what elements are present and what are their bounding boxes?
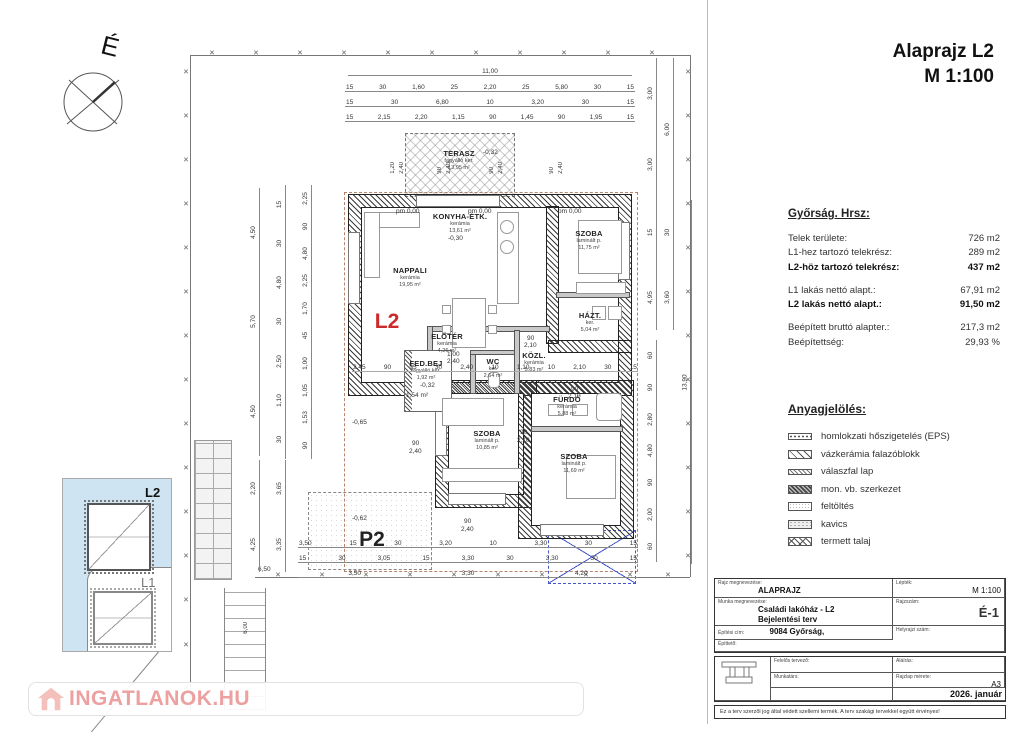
- partition-swatch-icon: [788, 469, 812, 475]
- dim-annotation: 90: [412, 441, 419, 448]
- dim-value: 15: [276, 201, 283, 208]
- dim-value: 10: [547, 364, 556, 371]
- dim-value: 2,15: [377, 114, 392, 121]
- dim-value: 10: [485, 99, 494, 106]
- dim-value: 5,70: [250, 316, 257, 329]
- dim-value: 90: [302, 222, 309, 229]
- dim-value: 3,05: [377, 555, 392, 562]
- dim-top-row3: 152,152,201,15901,45901,9515: [345, 112, 635, 122]
- dim-right-a: 3,003,00: [645, 58, 657, 200]
- firm-logo-icon: [718, 658, 762, 694]
- dim-value: 15: [626, 84, 635, 91]
- boundary-mark-icon: ×: [517, 49, 522, 58]
- property-info-panel: Győrság. Hrsz: Telek területe:726 m2 L1-…: [788, 208, 1000, 350]
- dim-value: 90: [647, 479, 654, 486]
- wall-bath-bedroom3: [531, 426, 623, 432]
- north-label: É: [98, 30, 122, 63]
- dim-value: 30: [393, 540, 402, 547]
- dim-value: 4,50: [250, 405, 257, 418]
- watermark-text: INGATLANOK.HU: [69, 687, 250, 711]
- boundary-mark-icon: ×: [297, 49, 302, 58]
- dim-left-lower-b: 3,653,35: [274, 460, 286, 572]
- dim-value: 1,45: [520, 114, 535, 121]
- empty-cell: [771, 688, 893, 701]
- dim-value: 5,80: [554, 84, 569, 91]
- legend-row: feltöltés: [788, 498, 1000, 516]
- dim-annotation: 90: [437, 167, 443, 174]
- boundary-mark-icon: ×: [183, 376, 188, 385]
- drawing-number-label: Rajzszám:: [896, 599, 919, 605]
- dim-value: 3,30: [533, 540, 548, 547]
- boundary-mark-icon: ×: [649, 49, 654, 58]
- sheet-size-cell: Rajzlap mérete: A3: [893, 673, 1005, 688]
- dim-annotation: 90: [520, 430, 527, 437]
- dim-value: 30: [664, 229, 671, 236]
- concrete-swatch-icon: [788, 485, 812, 494]
- dim-value: 1,00: [302, 357, 309, 370]
- dim-right-e: 60902,804,80902,0060: [645, 340, 657, 562]
- brick-swatch-icon: [788, 450, 812, 459]
- dim-annotation: 90: [549, 167, 555, 174]
- collaborator-label: Munkatárs:: [774, 674, 799, 680]
- dim-top-row2: 15306,80103,203015: [345, 97, 635, 107]
- legend-label: kavics: [821, 519, 847, 530]
- dim-value: 3,65: [276, 482, 283, 495]
- dim-annotation: 2,40: [409, 449, 422, 456]
- boundary-mark-icon: ×: [183, 200, 188, 209]
- boundary-mark-icon: ×: [183, 508, 188, 517]
- dim-annotation: 90: [464, 519, 471, 526]
- dim-value: 3,50: [347, 570, 362, 577]
- date-cell: 2026. január: [893, 688, 1005, 701]
- room-label: NAPPALIkerámia19,95 m²: [393, 266, 427, 288]
- designer-cell: Felelős tervező:: [771, 657, 893, 673]
- boundary-mark-icon: ×: [253, 49, 258, 58]
- firm-logo-cell: [715, 657, 771, 701]
- dim-value: 30: [589, 555, 598, 562]
- drawing-number-cell: Rajzszám: É-1: [893, 598, 1005, 626]
- parcel-label: Helyrajzi szám:: [896, 627, 930, 633]
- fill-swatch-icon: [788, 502, 812, 511]
- dim-value: 15: [298, 555, 307, 562]
- legend-row: vázkerámia falazóblokk: [788, 446, 1000, 464]
- dim-value: 15: [626, 114, 635, 121]
- dim-value: 3,35: [276, 538, 283, 551]
- boundary-mark-icon: ×: [183, 156, 188, 165]
- legend-label: válaszfal lap: [821, 466, 873, 477]
- boundary-mark-icon: ×: [341, 49, 346, 58]
- info-row: Beépített bruttó alapter.:217,3 m2: [788, 321, 1000, 335]
- dim-value: 2,25: [302, 192, 309, 205]
- scale-value: M 1:100: [896, 586, 1001, 595]
- dim-value: 25: [450, 84, 459, 91]
- drawing-title-line1: Alaprajz L2: [893, 40, 994, 65]
- dim-value: 30: [276, 240, 283, 247]
- kitchen-sink: [500, 220, 514, 234]
- scale-label: Lépték:: [896, 580, 912, 586]
- dim-value: 15: [629, 364, 638, 371]
- dim-value: 95: [408, 364, 417, 371]
- dim-value: 15: [345, 84, 354, 91]
- drawing-title: Alaprajz L2 M 1:100: [893, 40, 994, 89]
- info-label: L1-hez tartozó telekrész:: [788, 246, 892, 260]
- dim-right-b: 6,00: [662, 58, 674, 200]
- dim-interior-row: 2,459095302,40101,10102,103015: [352, 362, 638, 372]
- dim-value: 2,80: [647, 413, 654, 426]
- chair: [442, 305, 451, 314]
- boundary-mark-icon: ×: [183, 641, 188, 650]
- dim-value: 13,90: [682, 374, 689, 390]
- address-cell: Építési cím: 9084 Győrság,: [715, 626, 893, 640]
- dim-value: 4,80: [647, 445, 654, 458]
- dim-value: 15: [629, 555, 638, 562]
- drawing-name-cell: Rajz megnevezése: ALAPRAJZ: [715, 579, 893, 598]
- dim-value: 1,53: [302, 411, 309, 424]
- lot-boundary-left: [190, 55, 191, 710]
- dim-annotation: pm 0,00: [396, 209, 420, 216]
- dim-value: 3,30: [461, 570, 476, 577]
- copyright-note: Ez a terv szerzői jog által védett szell…: [714, 705, 1006, 719]
- house-logo-icon: [37, 686, 65, 712]
- info-label: L2-höz tartozó telekrész:: [788, 261, 899, 275]
- watermark-bar: INGATLANOK.HU: [28, 682, 584, 716]
- client-cell: Építtető:: [715, 640, 893, 652]
- terrace-door-opening: [416, 195, 500, 207]
- wardrobe-bedroom1: [576, 282, 626, 294]
- sofa-chaise: [364, 212, 380, 278]
- info-value: 91,50 m2: [960, 298, 1000, 312]
- boundary-mark-icon: ×: [685, 156, 690, 165]
- dim-value: 30: [337, 555, 346, 562]
- dim-value: 2,45: [352, 364, 367, 371]
- dim-annotation: 2,10: [524, 343, 537, 350]
- boundary-mark-icon: ×: [561, 49, 566, 58]
- north-compass: É: [55, 28, 165, 138]
- dim-value: 4,80: [302, 247, 309, 260]
- info-row: L1 lakás nettó alapt.:67,91 m2: [788, 284, 1000, 298]
- dim-value: 30: [276, 436, 283, 443]
- boundary-mark-icon: ×: [183, 464, 188, 473]
- dim-value: 30: [505, 555, 514, 562]
- dim-annotation: 2,40: [498, 162, 504, 174]
- boundary-mark-icon: ×: [183, 596, 188, 605]
- eps-swatch-icon: [788, 433, 812, 440]
- dim-value: 3,60: [664, 291, 671, 304]
- boundary-mark-icon: ×: [429, 49, 434, 58]
- info-value: 29,93 %: [965, 336, 1000, 350]
- dim-value: 30: [434, 364, 443, 371]
- boundary-mark-icon: ×: [473, 49, 478, 58]
- dim-right-d: 303,60: [662, 200, 674, 330]
- dim-right-c: 154,95: [645, 200, 657, 330]
- dim-value: 30: [584, 540, 593, 547]
- kitchen-hob: [500, 240, 514, 254]
- dim-annotation: 6,00: [243, 622, 249, 634]
- dim-value: 2,20: [414, 114, 429, 121]
- client-label: Építtető:: [718, 641, 737, 647]
- sheet-divider: [707, 0, 708, 724]
- collaborator-cell: Munkatárs:: [771, 673, 893, 688]
- dim-left-b: 15304,80302,501,1030: [274, 185, 286, 459]
- info-row: L1-hez tartozó telekrész:289 m2: [788, 246, 1000, 260]
- boundary-mark-icon: ×: [685, 112, 690, 121]
- work-name-cell: Munka megnevezése: Családi lakóház - L2 …: [715, 598, 893, 626]
- boundary-mark-icon: ×: [385, 49, 390, 58]
- dim-value: 4,20: [574, 570, 589, 577]
- wall-utility-bath: [548, 340, 632, 353]
- legend-label: feltöltés: [821, 501, 854, 512]
- dim-value: 15: [647, 229, 654, 236]
- work-name-value1: Családi lakóház - L2: [758, 605, 889, 615]
- dim-value: 3,30: [545, 555, 560, 562]
- info-label: L2 lakás nettó alapt.:: [788, 298, 882, 312]
- work-name-value2: Bejelentési terv: [758, 615, 889, 625]
- legend-row: válaszfal lap: [788, 463, 1000, 481]
- dim-value: 2,20: [483, 84, 498, 91]
- dim-value: 25: [521, 84, 530, 91]
- dim-value: 30: [390, 99, 399, 106]
- chair: [488, 325, 497, 334]
- dim-value: 15: [345, 99, 354, 106]
- legend-heading: Anyagjelölés:: [788, 402, 1000, 416]
- info-row: L2-höz tartozó telekrész:437 m2: [788, 261, 1000, 275]
- dim-value: 3,20: [438, 540, 453, 547]
- dim-value: 60: [647, 352, 654, 359]
- dim-annotation: 1,20: [390, 162, 396, 174]
- legend-row: mon. vb. szerkezet: [788, 481, 1000, 499]
- dim-value: 1,70: [302, 302, 309, 315]
- boundary-mark-icon: ×: [183, 112, 188, 121]
- key-plan-l1-footprint: [93, 591, 153, 645]
- bed-bedroom2: [442, 398, 504, 426]
- dim-annotation: -0,32: [420, 383, 435, 390]
- unit-l2-label: L2: [375, 310, 400, 334]
- boundary-mark-icon: ×: [183, 332, 188, 341]
- dim-annotation: 2,40: [399, 162, 405, 174]
- drawing-name-label: Rajz megnevezése:: [718, 580, 762, 586]
- dim-value: 2,25: [302, 275, 309, 288]
- dim-value: 6,80: [435, 99, 450, 106]
- dim-value: 1,05: [302, 384, 309, 397]
- cabinet-bedroom2: [442, 468, 522, 482]
- dim-value: 30: [581, 99, 590, 106]
- dim-annotation: -0,62: [352, 516, 367, 523]
- info-label: L1 lakás nettó alapt.:: [788, 284, 876, 298]
- wall-kitchen-bedroom: [546, 206, 559, 344]
- boundary-mark-icon: ×: [183, 420, 188, 429]
- boundary-mark-icon: ×: [605, 49, 610, 58]
- dim-right-total: 13,90: [680, 200, 692, 564]
- living-window: [348, 232, 360, 304]
- dim-top-row1: 15301,60252,20255,803015: [345, 82, 635, 92]
- room-label: HÁZT.ker.5,04 m²: [579, 311, 601, 333]
- dim-bottom-row1: 3,5015303,20103,303015: [298, 538, 638, 548]
- materials-legend: Anyagjelölés: homlokzati hőszigetelés (E…: [788, 402, 1000, 551]
- drawing-title-line2: M 1:100: [893, 65, 994, 90]
- dim-annotation: -0,65: [352, 420, 367, 427]
- dim-left-c: 2,25904,802,251,70451,001,051,5390: [300, 185, 312, 459]
- dim-value: 1,15: [451, 114, 466, 121]
- info-value: 289 m2: [968, 246, 1000, 260]
- dim-annotation: 1,54 m²: [406, 393, 428, 400]
- dim-value: 15: [348, 540, 357, 547]
- legend-row: termett talaj: [788, 533, 1000, 551]
- shower: [596, 393, 622, 421]
- sheet-size-label: Rajzlap mérete:: [896, 674, 931, 680]
- wall-wc-west: [470, 350, 476, 394]
- dim-value: 15: [626, 99, 635, 106]
- dim-value: 60: [647, 542, 654, 549]
- dim-value: 90: [302, 442, 309, 449]
- dim-value: 15: [421, 555, 430, 562]
- gravel-swatch-icon: [788, 520, 812, 529]
- retaining-wall: [194, 440, 232, 580]
- scale-cell: Lépték: M 1:100: [893, 579, 1005, 598]
- dim-value: 3,20: [530, 99, 545, 106]
- dim-value: 1,60: [411, 84, 426, 91]
- dim-value: 2,40: [459, 364, 474, 371]
- boundary-mark-icon: ×: [685, 68, 690, 77]
- boundary-mark-icon: ×: [183, 244, 188, 253]
- key-plan-l2-label: L2: [145, 485, 160, 500]
- dim-left-a: 4,505,704,50: [248, 188, 260, 456]
- dryer: [608, 306, 622, 320]
- legend-label: termett talaj: [821, 536, 871, 547]
- key-plan-l1-label: L1: [141, 575, 155, 590]
- dim-top-total: 11,00: [348, 66, 632, 76]
- dim-value: 2,20: [250, 482, 257, 495]
- room-label: SZOBAlaminált p.11,69 m²: [560, 452, 587, 474]
- key-plan-inset: L2 L1: [62, 478, 172, 652]
- dim-annotation: -0,32: [483, 150, 498, 157]
- dim-value: 30: [378, 84, 387, 91]
- dim-value: 2,50: [276, 355, 283, 368]
- dim-value: 1,10: [516, 364, 531, 371]
- legend-label: mon. vb. szerkezet: [821, 484, 901, 495]
- date-value: 2026. január: [896, 689, 1002, 699]
- info-value: 726 m2: [968, 232, 1000, 246]
- dim-value: 30: [603, 364, 612, 371]
- legend-row: homlokzati hőszigetelés (EPS): [788, 428, 1000, 446]
- dim-value: 3,00: [647, 158, 654, 171]
- dim-value: 3,30: [461, 555, 476, 562]
- boundary-mark-icon: ×: [209, 49, 214, 58]
- dim-annotation: 2,10: [517, 438, 530, 445]
- dim-value: 90: [488, 114, 497, 121]
- drawing-number-value: É-1: [896, 605, 1001, 620]
- dim-value: 3,50: [298, 540, 313, 547]
- dim-value: 1,95: [589, 114, 604, 121]
- dim-value: 10: [490, 364, 499, 371]
- info-row: Beépítettség:29,93 %: [788, 336, 1000, 350]
- room-label: SZOBAlaminált p.11,75 m²: [575, 229, 602, 251]
- legend-label: vázkerámia falazóblokk: [821, 449, 920, 460]
- parcel-cell: Helyrajzi szám:: [893, 626, 1005, 652]
- property-info-heading: Győrság. Hrsz:: [788, 208, 1000, 220]
- dim-annotation: 2,40: [446, 162, 452, 174]
- dim-annotation: pm 0,00: [468, 209, 492, 216]
- info-value: 437 m2: [968, 261, 1000, 275]
- dim-value: 30: [276, 318, 283, 325]
- dim-value: 15: [345, 114, 354, 121]
- dim-bottom-row3: 3,503,304,20: [298, 568, 638, 578]
- bedroom2-window-south: [448, 493, 506, 505]
- dim-value: 90: [647, 384, 654, 391]
- bedroom3-window: [540, 524, 604, 536]
- dim-value: 90: [383, 364, 392, 371]
- dim-value: 11,00: [481, 68, 499, 75]
- dim-value: 10: [489, 540, 498, 547]
- dim-value: 3,00: [647, 87, 654, 100]
- boundary-mark-icon: ×: [665, 571, 670, 580]
- designer-label: Felelős tervező:: [774, 658, 809, 664]
- room-label: SZOBAlaminált p.10,85 m²: [473, 429, 500, 451]
- boundary-mark-icon: ×: [183, 552, 188, 561]
- dim-value: 15: [629, 540, 638, 547]
- dim-annotation: 90: [489, 167, 495, 174]
- dim-value: 30: [593, 84, 602, 91]
- dim-annotation: pm 0,00: [558, 209, 582, 216]
- signature-label: Aláírás:: [896, 658, 913, 664]
- dim-value: 4,25: [250, 538, 257, 551]
- signature-cell: Aláírás:: [893, 657, 1005, 673]
- dim-value: 4,80: [276, 277, 283, 290]
- dim-value: 2,10: [572, 364, 587, 371]
- dim-value: 4,50: [250, 226, 257, 239]
- dim-value: 1,10: [276, 394, 283, 407]
- address-value: 9084 Győrság,: [746, 627, 825, 636]
- info-value: 67,91 m2: [960, 284, 1000, 298]
- dim-annotation: 2,40: [558, 162, 564, 174]
- dim-annotation: -0,30: [448, 236, 463, 243]
- info-row: Telek területe:726 m2: [788, 232, 1000, 246]
- dim-value: 45: [302, 332, 309, 339]
- boundary-mark-icon: ×: [183, 288, 188, 297]
- wall-wc-north: [470, 350, 520, 355]
- chair: [488, 305, 497, 314]
- dim-left-lower-a: 2,204,25: [248, 460, 260, 572]
- dim-value: 90: [557, 114, 566, 121]
- info-label: Beépített bruttó alapter.:: [788, 321, 889, 335]
- dim-value: 6,00: [664, 123, 671, 136]
- address-label: Építési cím:: [718, 630, 744, 636]
- drawing-name-value: ALAPRAJZ: [718, 586, 889, 595]
- dim-value: 4,95: [647, 291, 654, 304]
- sheet-size-value: A3: [896, 680, 1001, 688]
- dim-bottom-row2: 15303,05153,30303,303015: [298, 553, 638, 563]
- dim-value: 2,00: [647, 508, 654, 521]
- legend-row: kavics: [788, 516, 1000, 534]
- info-row: L2 lakás nettó alapt.:91,50 m2: [788, 298, 1000, 312]
- key-plan-l2-footprint: [87, 503, 151, 571]
- dim-annotation: 2,40: [461, 527, 474, 534]
- info-value: 217,3 m2: [960, 321, 1000, 335]
- dim-annotation: 2,10: [568, 394, 581, 401]
- compass-icon: É: [55, 28, 165, 138]
- info-label: Beépítettség:: [788, 336, 844, 350]
- legend-label: homlokzati hőszigetelés (EPS): [821, 431, 950, 442]
- lot-boundary-top: [190, 55, 690, 56]
- boundary-mark-icon: ×: [183, 68, 188, 77]
- soil-swatch-icon: [788, 537, 812, 546]
- title-block: Rajz megnevezése: ALAPRAJZ Lépték: M 1:1…: [714, 578, 1006, 719]
- info-label: Telek területe:: [788, 232, 847, 246]
